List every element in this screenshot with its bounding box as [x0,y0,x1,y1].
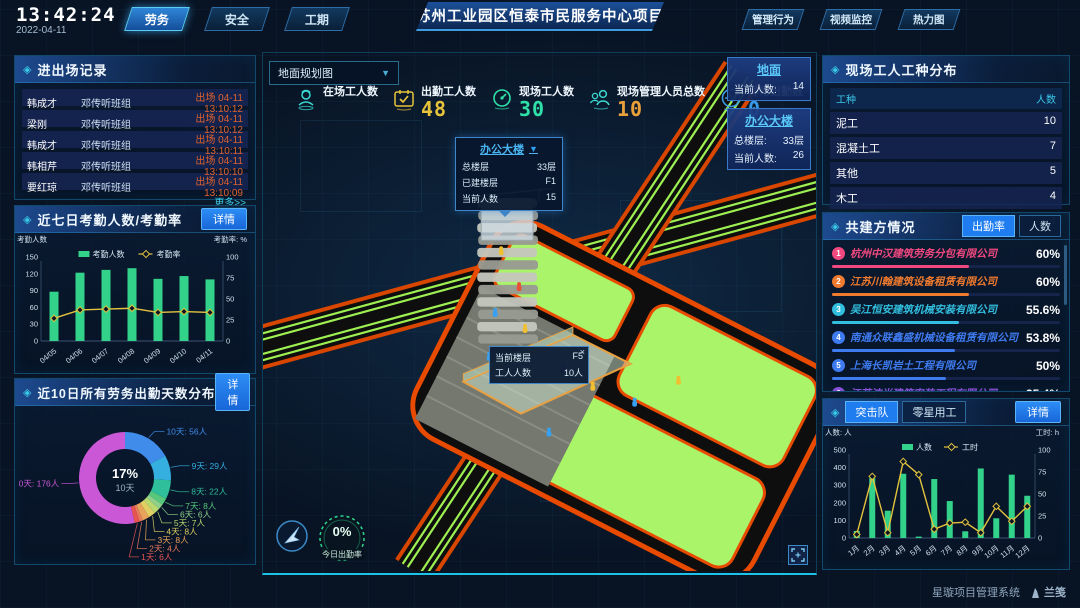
nav-tab-right-label-1: 视频监控 [830,12,872,27]
tooltip-row-label: 已建楼层 [462,176,498,189]
tooltip-row-label: 总楼层 [462,160,489,173]
partner-percent: 55.6% [1026,303,1060,317]
svg-text:04/07: 04/07 [90,346,110,365]
map-layer-value: 地面规划图 [278,65,333,81]
card-row-value: 33层 [783,132,804,147]
nav-tab-1[interactable]: 安全 [204,7,270,31]
trade-type: 混凝土工 [836,140,880,156]
building-card-1[interactable]: 办公大楼总楼层:33层当前人数:26 [727,108,811,170]
card-row-label: 总楼层: [734,132,767,147]
tooltip-row-label: 当前楼层 [495,351,531,364]
svg-text:1月: 1月 [846,543,861,557]
floor-tooltip: × 当前楼层F5工人人数10人 [489,346,589,384]
partner-bar-fill [832,265,969,268]
panel-title: 共建方情况 [845,217,915,236]
calendar-icon [391,86,417,117]
svg-text:0天: 176人: 0天: 176人 [19,479,60,489]
attendance-days-donut-chart: 10天: 56人9天: 29人8天: 22人7天: 8人6天: 6人5天: 7人… [15,406,249,562]
svg-text:90: 90 [30,286,38,295]
building-cards: 地面当前人数:14办公大楼总楼层:33层当前人数:26 [727,57,811,170]
clock: 13:42:24 2022-04-11 [16,4,116,36]
record-row-2: 韩成才邓传听班组出场 04-11 13:10:11 [22,131,248,148]
partner-name: 南通众联鑫盛机械设备租赁有限公司 [850,330,1021,345]
record-row-3: 韩相芹邓传听班组出场 04-11 13:10:10 [22,152,248,169]
tower-tooltip-title: 办公大楼 [480,141,524,157]
dashboard-root: 13:42:24 2022-04-11 劳务安全工期 苏州工业园区恒泰市民服务中… [0,0,1080,608]
trade-count: 10 [1044,115,1056,131]
partner-item-3[interactable]: 4南通众联鑫盛机械设备租赁有限公司53.8% [832,330,1060,352]
svg-text:04/06: 04/06 [64,346,84,365]
card-row-label: 当前人数: [734,81,777,96]
svg-text:30: 30 [30,320,38,329]
team-tab-1[interactable]: 零星用工 [902,401,966,423]
svg-text:04/11: 04/11 [194,346,214,364]
svg-text:工时: 工时 [962,442,978,452]
date-text: 2022-04-11 [16,25,116,36]
svg-text:10天: 10天 [115,483,134,493]
stat-value [323,99,378,119]
svg-text:工时: h: 工时: h [1036,427,1059,437]
record-row-0: 韩成才邓传听班组出场 04-11 13:10:12 [22,89,248,106]
partner-bar-fill [832,293,969,296]
record-name: 韩成才 [27,95,81,110]
record-team: 邓传听班组 [81,137,159,152]
trade-row-1: 混凝土工7 [830,137,1062,159]
time-text: 13:42:24 [16,4,116,26]
compass-icon[interactable] [275,519,309,553]
stat-value: 48 [421,99,476,119]
svg-text:120: 120 [25,269,38,278]
panel-worker-trades: ◈ 现场工人工种分布 工种 人数 泥工10混凝土工7其他5木工4塔司4 [822,55,1070,205]
nav-tab-label-0: 劳务 [145,11,169,28]
gauge-icon [489,86,515,117]
svg-text:4月: 4月 [893,543,908,557]
partner-bar-track [832,377,1060,380]
trade-type: 其他 [836,165,858,181]
svg-text:12月: 12月 [1013,543,1031,560]
partners-tab-1[interactable]: 人数 [1019,215,1061,237]
svg-text:1天: 6人: 1天: 6人 [141,552,173,562]
trade-type: 木工 [836,190,858,206]
trade-count: 4 [1050,190,1056,206]
record-team: 邓传听班组 [81,95,159,110]
record-team: 邓传听班组 [81,179,159,194]
partner-percent: 50% [1036,359,1060,373]
building-card-0[interactable]: 地面当前人数:14 [727,57,811,101]
svg-text:8月: 8月 [955,543,970,557]
stat-label: 在场工人数 [323,83,378,99]
nav-tab-0[interactable]: 劳务 [124,7,190,31]
svg-text:0: 0 [1038,534,1042,543]
nav-tab-right-label-0: 管理行为 [752,12,794,27]
partner-item-4[interactable]: 5上海长凯岩土工程有限公司50% [832,358,1060,380]
svg-text:50: 50 [1038,490,1046,499]
diamond-icon: ◈ [831,406,839,419]
brand-name: 兰笺 [1044,584,1066,600]
svg-text:17%: 17% [112,466,138,481]
map-layer-select[interactable]: 地面规划图 ▼ [269,61,399,85]
svg-text:8天: 22人: 8天: 22人 [191,487,227,497]
svg-text:0: 0 [226,337,230,346]
partner-name: 吴江恒安建筑机械安装有限公司 [850,302,1021,317]
partner-bar-track [832,293,1060,296]
partner-percent: 60% [1036,275,1060,289]
nav-tabs-left: 劳务安全工期 [128,7,346,31]
partner-item-0[interactable]: 1杭州中汉建筑劳务分包有限公司60% [832,246,1060,268]
app-name: 星璇项目管理系统 [932,584,1020,600]
svg-text:400: 400 [833,463,846,472]
partner-name: 江苏洁尚建筑安装工程有限公司 [850,386,1021,392]
fullscreen-icon[interactable] [788,545,808,565]
tooltip-row-value: 33层 [537,160,556,173]
team-tab-0[interactable]: 突击队 [845,401,898,423]
card-row-label: 当前人数: [734,150,777,165]
partner-bar-fill [832,349,955,352]
trades-header-row: 工种 人数 [830,88,1062,109]
panel-7day-attendance: ◈ 近七日考勤人数/考勤率 详情 考勤人数考勤率: %考勤人数考勤率030609… [14,205,256,374]
svg-text:60: 60 [30,303,38,312]
close-icon[interactable]: × [580,347,585,357]
svg-text:11月: 11月 [998,543,1016,560]
partner-name: 杭州中汉建筑劳务分包有限公司 [850,246,1031,261]
diamond-icon: ◈ [831,220,839,233]
svg-text:75: 75 [1038,468,1046,477]
stat-item-2: 现场工人数30 [489,83,574,119]
today-attendance-label: 今日出勤率 [320,549,364,560]
tooltip-row-value: F1 [545,176,556,189]
partner-percent: 35.4% [1026,387,1060,393]
building-card-title: 地面 [734,61,804,78]
trade-row-3: 木工4 [830,187,1062,209]
brand-logo: 兰笺 [1030,584,1066,600]
panel-title: 近七日考勤人数/考勤率 [37,210,182,229]
svg-text:100: 100 [226,253,239,262]
svg-text:100: 100 [833,516,846,525]
svg-text:10天: 56人: 10天: 56人 [166,426,207,436]
diamond-icon: ◈ [831,63,839,76]
partner-name: 上海长凯岩土工程有限公司 [850,358,1031,373]
svg-text:6月: 6月 [924,543,939,557]
nav-tab-right-2[interactable]: 热力图 [898,9,961,30]
partner-bar-fill [832,321,959,324]
tooltip-row-value: 15 [546,192,556,205]
svg-text:150: 150 [25,253,38,262]
trade-row-0: 泥工10 [830,112,1062,134]
stat-item-1: 出勤工人数48 [391,83,476,119]
rank-badge: 2 [832,275,845,288]
partner-percent: 53.8% [1026,331,1060,345]
svg-text:10月: 10月 [982,543,1000,560]
svg-text:9月: 9月 [970,543,985,557]
svg-text:25: 25 [1038,512,1046,521]
partner-item-2[interactable]: 3吴江恒安建筑机械安装有限公司55.6% [832,302,1060,324]
nav-tab-label-2: 工期 [305,11,329,28]
svg-text:人数: 人数 [916,442,932,452]
title-band: 苏州工业园区恒泰市民服务中心项目 [416,2,664,31]
partner-item-5[interactable]: 6江苏洁尚建筑安装工程有限公司35.4% [832,386,1060,392]
tooltip-row-value: 10人 [564,366,583,379]
page-title: 苏州工业园区恒泰市民服务中心项目 [416,5,664,26]
pen-logo-icon [1030,586,1041,599]
chevron-down-icon: ▼ [381,68,390,78]
today-attendance-value: 0% [317,524,367,539]
partner-bar-fill [832,377,946,380]
svg-text:考勤率: 考勤率 [157,249,181,259]
record-team: 邓传听班组 [81,158,159,173]
today-attendance-ring: 0% 今日出勤率 [317,513,367,563]
svg-text:0: 0 [842,534,846,543]
svg-text:25: 25 [226,316,234,325]
svg-text:04/09: 04/09 [142,346,162,365]
card-row-value: 14 [793,81,804,96]
panel-entry-exit-records: ◈ 进出场记录 韩成才邓传听班组出场 04-11 13:10:12梁刚邓传听班组… [14,55,256,200]
record-row-1: 梁刚邓传听班组出场 04-11 13:10:12 [22,110,248,127]
trade-count: 7 [1050,140,1056,156]
building-card-title: 办公大楼 [734,112,804,129]
panel-team-chart: ◈ 突击队零星用工 详情 人数: 人工时: h人数工时0100200300400… [822,398,1070,570]
stat-item-3: 现场管理人员总数10 [587,83,705,119]
svg-text:200: 200 [833,498,846,507]
record-name: 韩相芹 [27,158,81,173]
trades-col-type: 工种 [836,91,856,106]
partner-bar-track [832,349,1060,352]
people-icon [587,86,613,117]
collapse-icon[interactable]: ▼ [529,144,538,154]
svg-text:9天: 29人: 9天: 29人 [192,461,228,471]
footer: 星璇项目管理系统 兰笺 [932,584,1066,600]
trade-row-2: 其他5 [830,162,1062,184]
nav-tab-2[interactable]: 工期 [284,7,350,31]
panel-partners: ◈ 共建方情况 出勤率人数 1杭州中汉建筑劳务分包有限公司60%2江苏川翰建筑设… [822,212,1070,392]
svg-text:500: 500 [833,446,846,455]
map-region: 地面规划图 ▼ 在场工人数出勤工人数48现场工人数30现场管理人员总数10异常出… [262,52,817,575]
rank-badge: 5 [832,359,845,372]
top-bar: 13:42:24 2022-04-11 劳务安全工期 苏州工业园区恒泰市民服务中… [0,0,1080,42]
stat-value: 10 [617,99,705,119]
svg-text:50: 50 [226,295,234,304]
svg-text:04/05: 04/05 [38,346,58,365]
trade-count: 5 [1050,165,1056,181]
svg-text:人数: 人: 人数: 人 [825,427,852,437]
nav-tab-label-1: 安全 [225,11,249,28]
rank-badge: 4 [832,331,845,344]
rank-badge: 1 [832,247,845,260]
trade-type: 泥工 [836,115,858,131]
team-bar-line-chart: 人数: 人工时: h人数工时01002003004005000255075100… [823,426,1061,564]
rank-badge: 6 [832,387,845,392]
nav-tab-right-0[interactable]: 管理行为 [742,9,805,30]
diamond-icon: ◈ [23,213,31,226]
diamond-icon: ◈ [23,63,31,76]
svg-text:04/10: 04/10 [168,346,188,365]
panel-title: 进出场记录 [37,60,107,79]
detail-button[interactable]: 详情 [1015,401,1061,423]
tooltip-row-label: 工人人数 [495,366,531,379]
partner-bar-track [832,265,1060,268]
attendance-bar-line-chart: 考勤人数考勤率: %考勤人数考勤率03060901201500255075100… [15,233,249,367]
svg-text:7月: 7月 [939,543,954,557]
tower-tooltip: 办公大楼 ▼ 总楼层33层已建楼层F1当前人数15 [455,137,563,211]
stat-item-0: 在场工人数 [293,83,378,119]
svg-text:5月: 5月 [908,543,923,557]
svg-text:100: 100 [1038,446,1051,455]
rank-badge: 3 [832,303,845,316]
svg-text:考勤率: %: 考勤率: % [214,234,248,244]
svg-text:0: 0 [34,337,38,346]
trades-col-count: 人数 [1036,91,1056,106]
record-name: 梁刚 [27,116,81,131]
svg-text:04/08: 04/08 [116,346,136,365]
worker-icon [293,86,319,117]
nav-tab-right-1[interactable]: 视频监控 [820,9,883,30]
partner-item-1[interactable]: 2江苏川翰建筑设备租赁有限公司60% [832,274,1060,296]
svg-text:考勤人数: 考勤人数 [93,249,125,259]
partner-name: 江苏川翰建筑设备租赁有限公司 [850,274,1031,289]
nav-tabs-right: 管理行为视频监控热力图 [745,9,957,30]
record-team: 邓传听班组 [81,116,159,131]
partners-tab-0[interactable]: 出勤率 [962,215,1015,237]
svg-text:考勤人数: 考勤人数 [17,234,47,244]
record-row-4: 要红琼邓传听班组出场 04-11 13:10:09 [22,173,248,190]
diamond-icon: ◈ [23,386,31,399]
partner-bar-track [832,321,1060,324]
record-name: 韩成才 [27,137,81,152]
panel-title: 近10日所有劳务出勤天数分布 [37,383,215,402]
svg-text:2月: 2月 [862,543,877,557]
stat-value: 30 [519,99,574,119]
scrollbar-thumb[interactable] [1064,245,1067,305]
nav-tab-right-label-2: 热力图 [913,12,945,27]
svg-text:300: 300 [833,481,846,490]
panel-title: 现场工人工种分布 [845,60,957,79]
card-row-value: 26 [793,150,804,165]
record-name: 要红琼 [27,179,81,194]
tooltip-row-label: 当前人数 [462,192,498,205]
partner-percent: 60% [1036,247,1060,261]
svg-text:75: 75 [226,274,234,283]
svg-text:3月: 3月 [877,543,892,557]
panel-attendance-days-distribution: ◈ 近10日所有劳务出勤天数分布 详情 10天: 56人9天: 29人8天: 2… [14,378,256,565]
detail-button[interactable]: 详情 [201,208,247,230]
